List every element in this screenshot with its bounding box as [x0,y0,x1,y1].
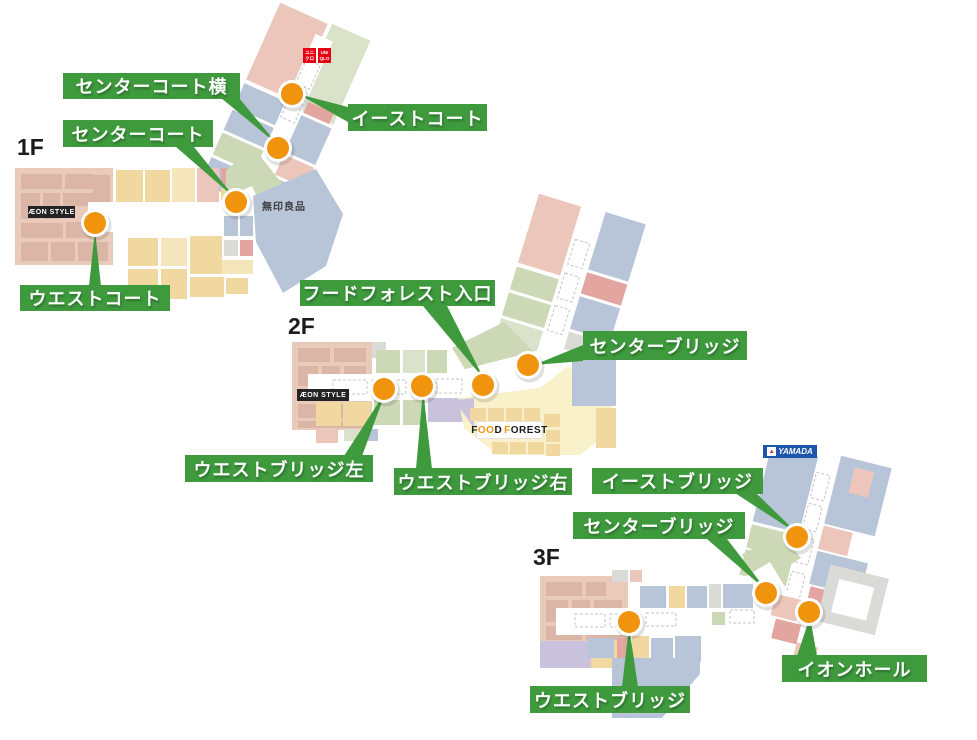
marker-label-3f-east-bridge: イーストブリッジ [592,468,763,494]
uniqlo-logo-en: UNI QLO [318,48,331,63]
marker-label-1f-east-court: イーストコート [348,104,487,131]
marker-label-3f-aeon-hall: イオンホール [782,655,927,682]
marker-label-3f-center-bridge: センターブリッジ [573,512,745,539]
floor-title-2f: 2F [288,315,315,338]
shop-block [712,612,725,625]
dot-1f-center-court-side [264,134,295,166]
marker-label-2f-center-bridge: センターブリッジ [583,331,747,360]
marker-label-1f-center-court-side: センターコート横 [63,73,240,99]
yamada-mark-icon: ▲ [767,447,776,456]
marker-label-1f-west-court: ウエストコート [20,285,170,311]
food-forest-logo-part: OO [478,425,495,436]
food-forest-logo-part: OREST [511,425,548,436]
food-forest-logo-part: F [504,425,511,436]
marker-label-2f-food-forest-entrance: フードフォレスト入口 [300,280,495,306]
food-forest-logo: FOODFOREST [476,421,543,439]
uniqlo-logo-jp: ユニ クロ [303,48,316,63]
marker-label-2f-west-bridge-right: ウエストブリッジ右 [394,468,572,495]
yamada-logo-text: YAMADA [778,447,813,456]
aeon-style-logo-2f: ÆON STYLE [297,389,349,401]
corridor-3f-west [556,608,768,635]
muji-store-name: 無印良品 [260,199,308,212]
aeon-style-logo-1f: ÆON STYLE [28,206,75,218]
shop-blocks [612,570,753,611]
uniqlo-logo-en-line2: QLO [320,56,330,61]
shop-blocks [116,168,235,202]
marker-label-1f-center-court: センターコート [63,120,213,147]
yamada-logo: ▲ YAMADA [763,445,817,458]
uniqlo-logo-jp-line2: クロ [305,56,314,61]
marker-label-3f-west-bridge: ウエストブリッジ [530,686,690,713]
shop-blocks [372,342,447,373]
floor-map-2f [292,192,646,456]
food-forest-logo-part: F [471,425,478,436]
food-forest-logo-part: D [494,425,502,436]
marker-label-2f-west-bridge-left: ウエストブリッジ左 [185,455,373,482]
floor-title-1f: 1F [17,136,44,159]
mall-floor-maps: 1F 2F 3F センターコート横 イーストコート センターコート ウエストコー… [0,0,977,740]
floor-title-3f: 3F [533,546,560,569]
floor-map-canvas [0,0,977,740]
